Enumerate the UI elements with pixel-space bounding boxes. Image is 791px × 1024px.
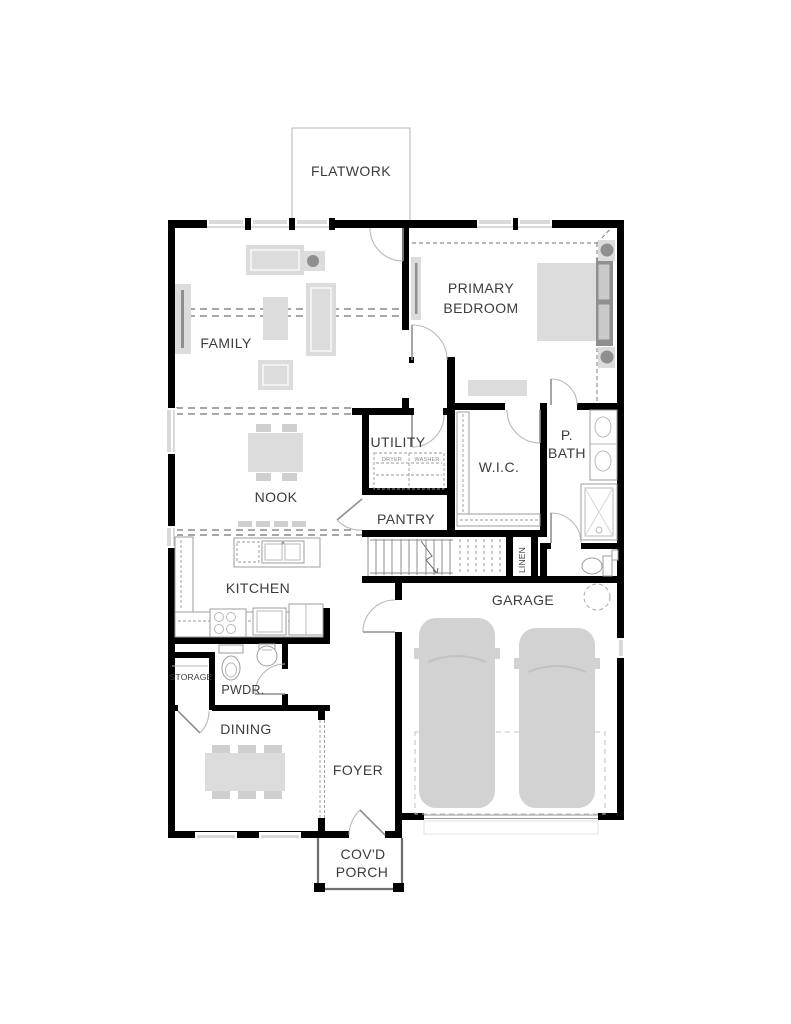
powder-room: PWDR. [219, 644, 277, 697]
bed [537, 258, 613, 346]
covered-porch: COV'D PORCH [314, 838, 404, 892]
family-window-3 [295, 219, 329, 229]
dining-window-2 [259, 832, 301, 840]
dresser [468, 380, 527, 396]
primary-bath-label-line1: P. [561, 427, 573, 443]
dining-room: DINING [205, 721, 285, 799]
family-window-2 [251, 219, 289, 229]
dining-label: DINING [220, 721, 271, 737]
garage: GARAGE [414, 584, 610, 814]
nook: NOOK [248, 424, 303, 505]
kitchen-island [234, 521, 320, 567]
flatwork-label: FLATWORK [311, 163, 391, 179]
bath-vanity [590, 410, 617, 480]
flatwork-pad: FLATWORK [292, 128, 410, 222]
water-closet-door [551, 513, 581, 543]
bath-door [551, 379, 577, 405]
garage-door [424, 815, 598, 834]
toilet-powder [222, 656, 240, 680]
toilet-primary [582, 556, 612, 576]
stair-direction-arrow [421, 541, 438, 573]
pantry-door [337, 499, 362, 530]
nightstand-top [598, 240, 615, 261]
floor-plan-drawing: FLATWORK [0, 0, 791, 1024]
porch-label-line2: PORCH [336, 864, 389, 880]
dryer-label: DRYER [382, 457, 402, 463]
garage-window [617, 638, 625, 658]
nightstand-bottom [598, 347, 615, 368]
garage-entry-door [363, 600, 395, 632]
walk-in-closet: W.I.C. [457, 412, 540, 526]
dishwasher-cabinet [253, 608, 286, 635]
linen-label: LINEN [517, 547, 527, 573]
bedroom-window-2 [518, 219, 552, 229]
dining-window-1 [195, 832, 237, 840]
nook-label: NOOK [255, 489, 298, 505]
kitchen-label: KITCHEN [226, 580, 290, 596]
side-table [302, 251, 325, 271]
washer-label: WASHER [414, 457, 439, 463]
range [210, 609, 246, 637]
nook-window [165, 408, 177, 454]
storage-label: STORAGE [170, 672, 213, 682]
car-1 [414, 618, 500, 808]
bedroom-door [412, 325, 447, 360]
dining-cased-opening [320, 720, 325, 818]
porch-label-line1: COV'D [340, 846, 385, 862]
refrigerator [289, 604, 323, 635]
wic-label: W.I.C. [479, 459, 520, 475]
foyer-label: FOYER [333, 762, 383, 778]
shower [581, 484, 617, 540]
linen-closet: LINEN [517, 547, 527, 573]
dining-door [178, 711, 209, 733]
family-room: FAMILY [175, 245, 336, 390]
stairs [368, 537, 500, 576]
storage-closet: STORAGE [170, 666, 213, 682]
water-closet [582, 550, 618, 576]
front-door [349, 810, 385, 835]
kitchen: KITCHEN [175, 521, 323, 637]
powder-label: PWDR. [221, 683, 264, 697]
washer-dryer: DRYER WASHER [374, 453, 444, 489]
pantry: PANTRY [377, 511, 435, 527]
media-console [175, 284, 191, 354]
ottoman [258, 360, 293, 390]
island-sink [262, 541, 304, 563]
sofa [246, 245, 304, 275]
coffee-table [263, 297, 288, 340]
car-2 [514, 628, 600, 808]
foyer: FOYER [333, 762, 383, 778]
pantry-label: PANTRY [377, 511, 435, 527]
bedroom-window-1 [477, 219, 513, 229]
primary-bedroom: PRIMARY BEDROOM [411, 240, 615, 396]
utility-room: DRYER WASHER UTILITY [371, 434, 444, 489]
primary-bath: P. BATH [548, 410, 617, 540]
flatwork-door [370, 228, 403, 261]
water-heater [584, 584, 610, 610]
wic-door [507, 410, 540, 443]
family-window-1 [207, 219, 245, 229]
primary-bedroom-label-line1: PRIMARY [448, 280, 515, 296]
floor-plan-page: FLATWORK [0, 0, 791, 1024]
family-label: FAMILY [200, 335, 251, 351]
powder-sink [257, 644, 277, 666]
primary-bath-label-line2: BATH [548, 445, 586, 461]
garage-label: GARAGE [492, 592, 554, 608]
utility-label: UTILITY [371, 434, 426, 450]
bedroom-tv-console [411, 257, 421, 320]
primary-bedroom-label-line2: BEDROOM [443, 300, 518, 316]
lounge-chair [306, 283, 336, 356]
